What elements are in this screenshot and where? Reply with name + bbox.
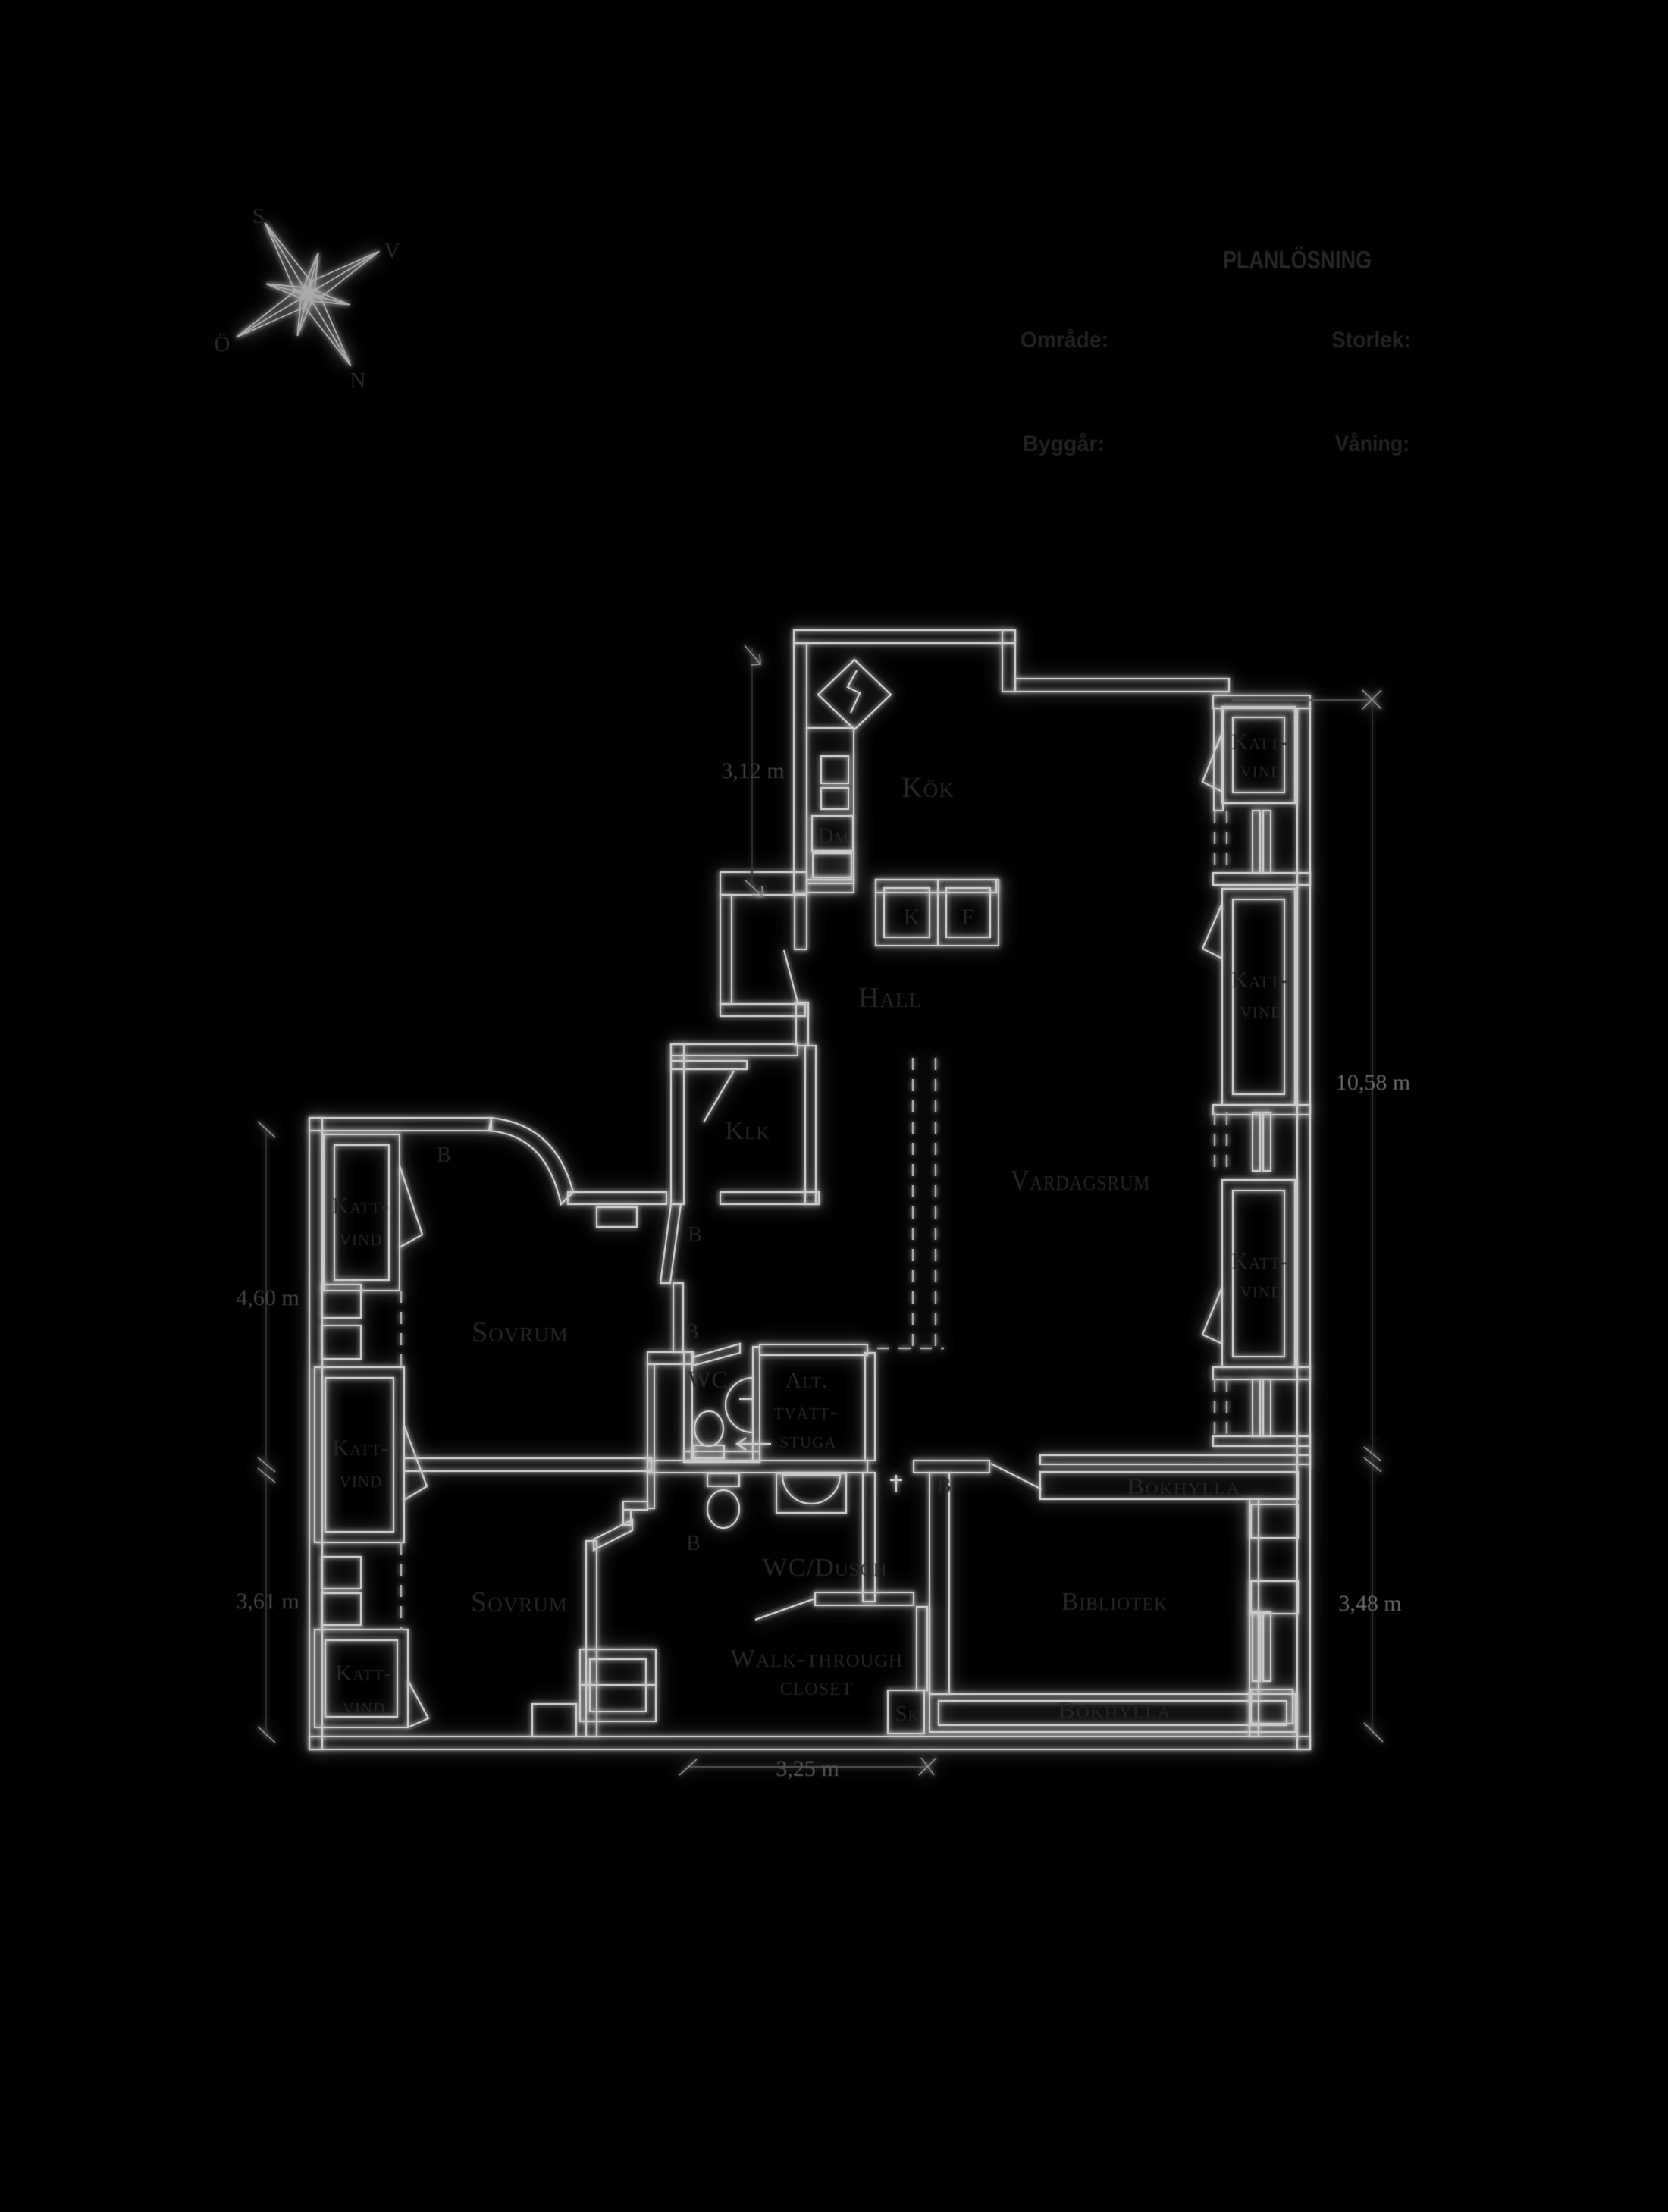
- svg-text:B: B: [686, 1532, 701, 1555]
- svg-text:Bokhylla: Bokhylla: [1127, 1474, 1240, 1499]
- svg-text:3,48 m: 3,48 m: [1338, 1591, 1401, 1616]
- svg-text:4,60 m: 4,60 m: [236, 1285, 299, 1310]
- svg-text:Dm: Dm: [817, 824, 849, 849]
- svg-text:closet: closet: [780, 1673, 854, 1701]
- svg-text:Katt-: Katt-: [1231, 729, 1288, 755]
- svg-text:3,12 m: 3,12 m: [721, 758, 784, 783]
- svg-text:Våning:: Våning:: [1335, 431, 1409, 457]
- svg-text:Walk-through: Walk-through: [730, 1645, 903, 1673]
- svg-text:V: V: [384, 239, 400, 263]
- svg-text:N: N: [350, 369, 366, 393]
- svg-text:Sk: Sk: [895, 1702, 920, 1726]
- svg-text:10,58 m: 10,58 m: [1336, 1070, 1410, 1095]
- svg-text:vind: vind: [1240, 1278, 1284, 1303]
- svg-text:stuga: stuga: [779, 1428, 836, 1453]
- svg-text:Vardagsrum: Vardagsrum: [1011, 1165, 1150, 1197]
- svg-text:vind: vind: [340, 1225, 383, 1250]
- svg-text:3,61 m: 3,61 m: [236, 1589, 299, 1614]
- svg-text:K: K: [904, 905, 921, 930]
- svg-text:Hall: Hall: [858, 982, 922, 1014]
- svg-text:Katt-: Katt-: [335, 1661, 392, 1686]
- svg-text:B: B: [685, 1320, 700, 1344]
- svg-text:Storlek:: Storlek:: [1331, 328, 1411, 353]
- svg-text:Byggår:: Byggår:: [1023, 431, 1105, 457]
- svg-text:PLANLÖSNING: PLANLÖSNING: [1223, 246, 1372, 274]
- svg-text:Klk: Klk: [725, 1117, 770, 1145]
- svg-text:Sovrum: Sovrum: [472, 1316, 569, 1348]
- svg-text:Ö: Ö: [215, 332, 230, 356]
- svg-text:S: S: [252, 204, 265, 228]
- svg-text:vind: vind: [343, 1694, 386, 1719]
- svg-text:F: F: [961, 905, 975, 930]
- svg-text:vind: vind: [1240, 758, 1284, 783]
- svg-text:tvätt-: tvätt-: [774, 1399, 839, 1424]
- svg-text:Kök: Kök: [901, 772, 954, 804]
- svg-text:Sovrum: Sovrum: [471, 1586, 568, 1618]
- svg-text:vind: vind: [340, 1467, 383, 1492]
- svg-text:WC: WC: [688, 1366, 729, 1393]
- svg-text:B: B: [437, 1144, 452, 1167]
- svg-text:Katt-: Katt-: [332, 1435, 389, 1461]
- svg-text:WC/Dusch: WC/Dusch: [763, 1554, 888, 1582]
- svg-text:Alt.: Alt.: [785, 1368, 829, 1393]
- svg-text:Katt-: Katt-: [1231, 1249, 1288, 1274]
- svg-text:B: B: [937, 1474, 952, 1498]
- svg-text:Bokhylla: Bokhylla: [1058, 1698, 1171, 1723]
- svg-text:Område:: Område:: [1021, 328, 1108, 353]
- svg-text:vind: vind: [1240, 998, 1284, 1023]
- svg-text:3,25 m: 3,25 m: [776, 1756, 839, 1781]
- svg-text:Bibliotek: Bibliotek: [1061, 1588, 1168, 1616]
- svg-text:Katt-: Katt-: [1231, 968, 1288, 993]
- svg-text:B: B: [688, 1223, 703, 1247]
- svg-text:Katt-: Katt-: [332, 1194, 389, 1219]
